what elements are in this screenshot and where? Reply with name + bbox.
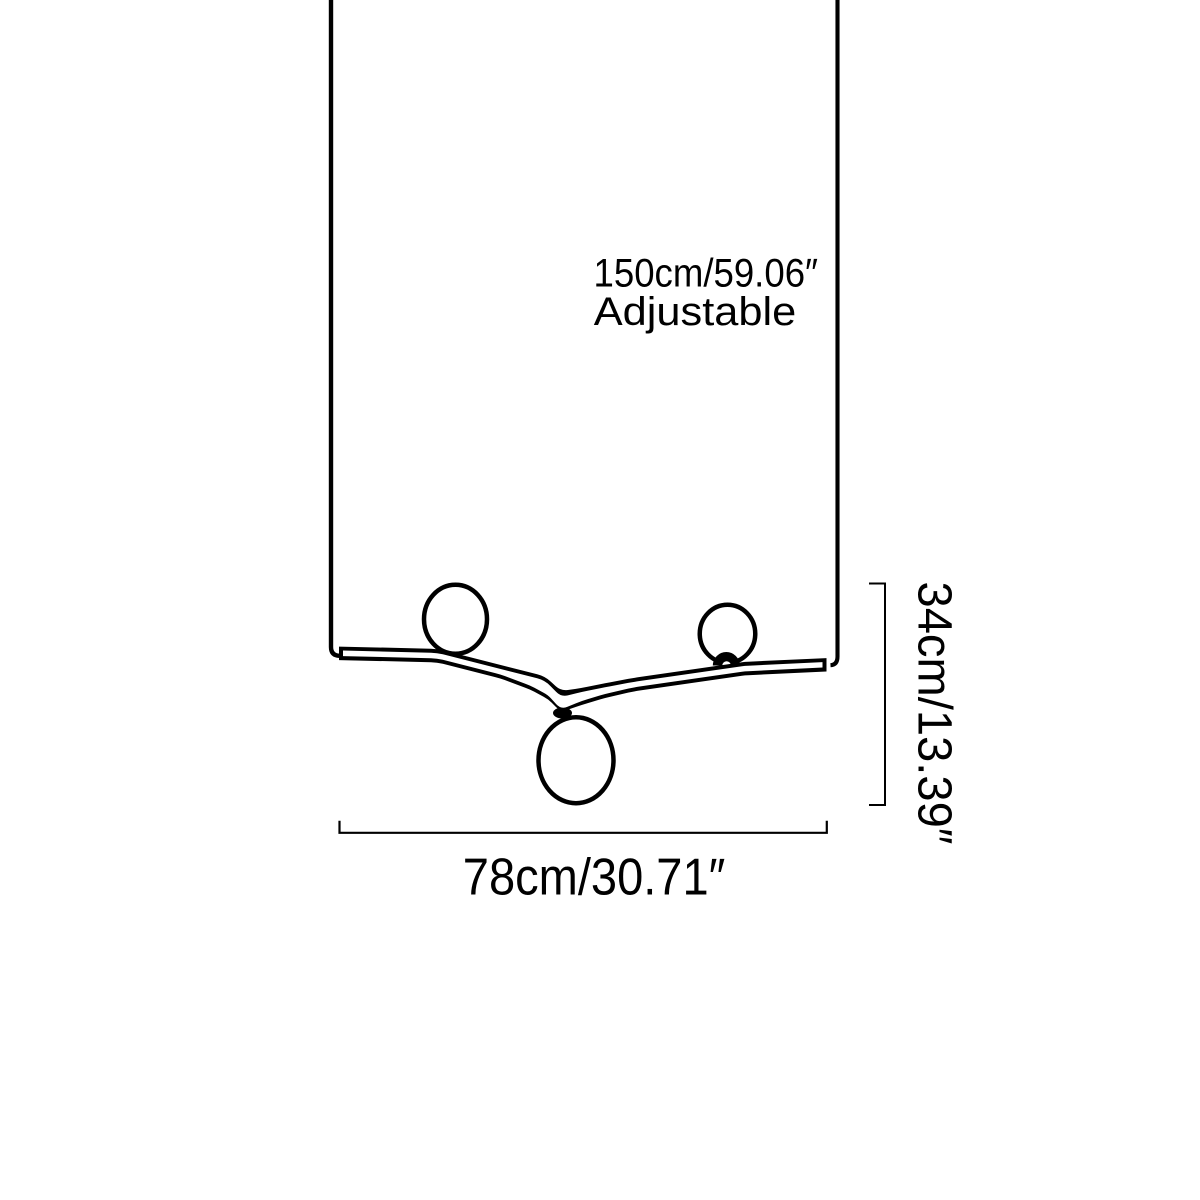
- svg-text:34cm/13.39″: 34cm/13.39″: [907, 582, 960, 845]
- svg-text:150cm/59.06″: 150cm/59.06″: [594, 252, 819, 296]
- svg-text:78cm/30.71″: 78cm/30.71″: [463, 849, 726, 907]
- svg-text:Adjustable: Adjustable: [594, 290, 797, 334]
